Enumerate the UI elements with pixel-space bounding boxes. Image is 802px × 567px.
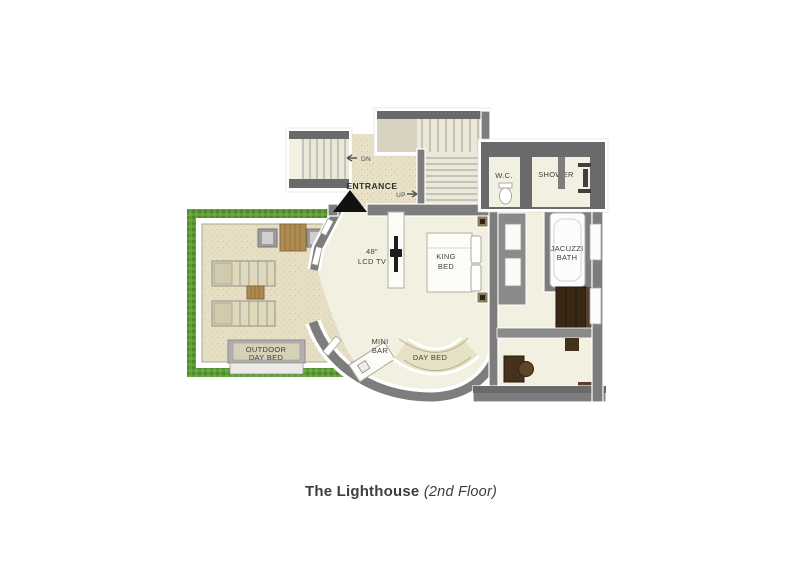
- terrace-chair-left: [258, 229, 277, 247]
- outdoor-day-bed-label-2: DAY BED: [249, 353, 284, 362]
- stairs-down: [286, 128, 352, 192]
- desk: [497, 328, 597, 338]
- desk-drawer: [565, 338, 579, 351]
- wardrobe: [556, 287, 592, 328]
- sun-lounger-2: [212, 301, 275, 326]
- wc-label: W.C.: [495, 171, 512, 180]
- jacuzzi-label-1: JACUZZI: [551, 244, 584, 253]
- entrance-label: ENTRANCE: [346, 181, 397, 191]
- jacuzzi-bath: JACUZZI BATH: [544, 208, 592, 292]
- bathroom-block: W.C. SHOWER: [478, 139, 608, 212]
- terrace-dining-table: [280, 224, 306, 251]
- bedside-lamp-1: [477, 216, 488, 227]
- shower-room: SHOWER: [532, 157, 591, 207]
- toilet: [499, 183, 512, 204]
- tv-unit: [388, 212, 404, 288]
- outdoor-day-bed: OUTDOOR DAY BED: [228, 340, 305, 374]
- plan-floor-subtitle: (2nd Floor): [424, 484, 497, 500]
- terrace-side-table: [247, 286, 264, 299]
- jacuzzi-label-2: BATH: [557, 253, 578, 262]
- king-bed-label-1: KING: [436, 252, 456, 261]
- floor-plan-page: OUTDOOR DAY BED: [0, 0, 802, 567]
- main-bedroom: 48" LCD TV KING BED MINI BAR: [312, 204, 498, 397]
- shower-partition: [558, 157, 565, 189]
- mini-bar-label-2: BAR: [372, 346, 389, 355]
- closet-shelves: [498, 213, 526, 305]
- floor-plan-drawing: OUTDOOR DAY BED: [0, 0, 802, 567]
- stair-side-wall: [417, 149, 425, 207]
- bottom-wall-top: [473, 386, 606, 393]
- day-bed-label: DAY BED: [413, 353, 448, 362]
- window-2: [590, 288, 601, 324]
- tv-label-1: 48": [366, 247, 378, 256]
- caption: The Lighthouse (2nd Floor): [0, 483, 802, 501]
- sun-lounger-1: [212, 261, 275, 286]
- pillow-2: [471, 265, 481, 291]
- tv-mount: [390, 249, 402, 257]
- plan-title: The Lighthouse: [305, 483, 419, 500]
- king-bed-label-2: BED: [438, 262, 455, 271]
- bedside-lamp-2: [477, 292, 488, 303]
- dn-label: DN: [361, 156, 371, 163]
- tv-label-2: LCD TV: [358, 257, 386, 266]
- pillow-1: [471, 236, 481, 263]
- window-1: [590, 224, 601, 260]
- shower-label: SHOWER: [538, 170, 574, 179]
- headboard-wall: [489, 204, 498, 390]
- wc-room: W.C.: [489, 157, 520, 207]
- up-label: UP: [396, 192, 406, 199]
- mini-bar-label-1: MINI: [371, 337, 388, 346]
